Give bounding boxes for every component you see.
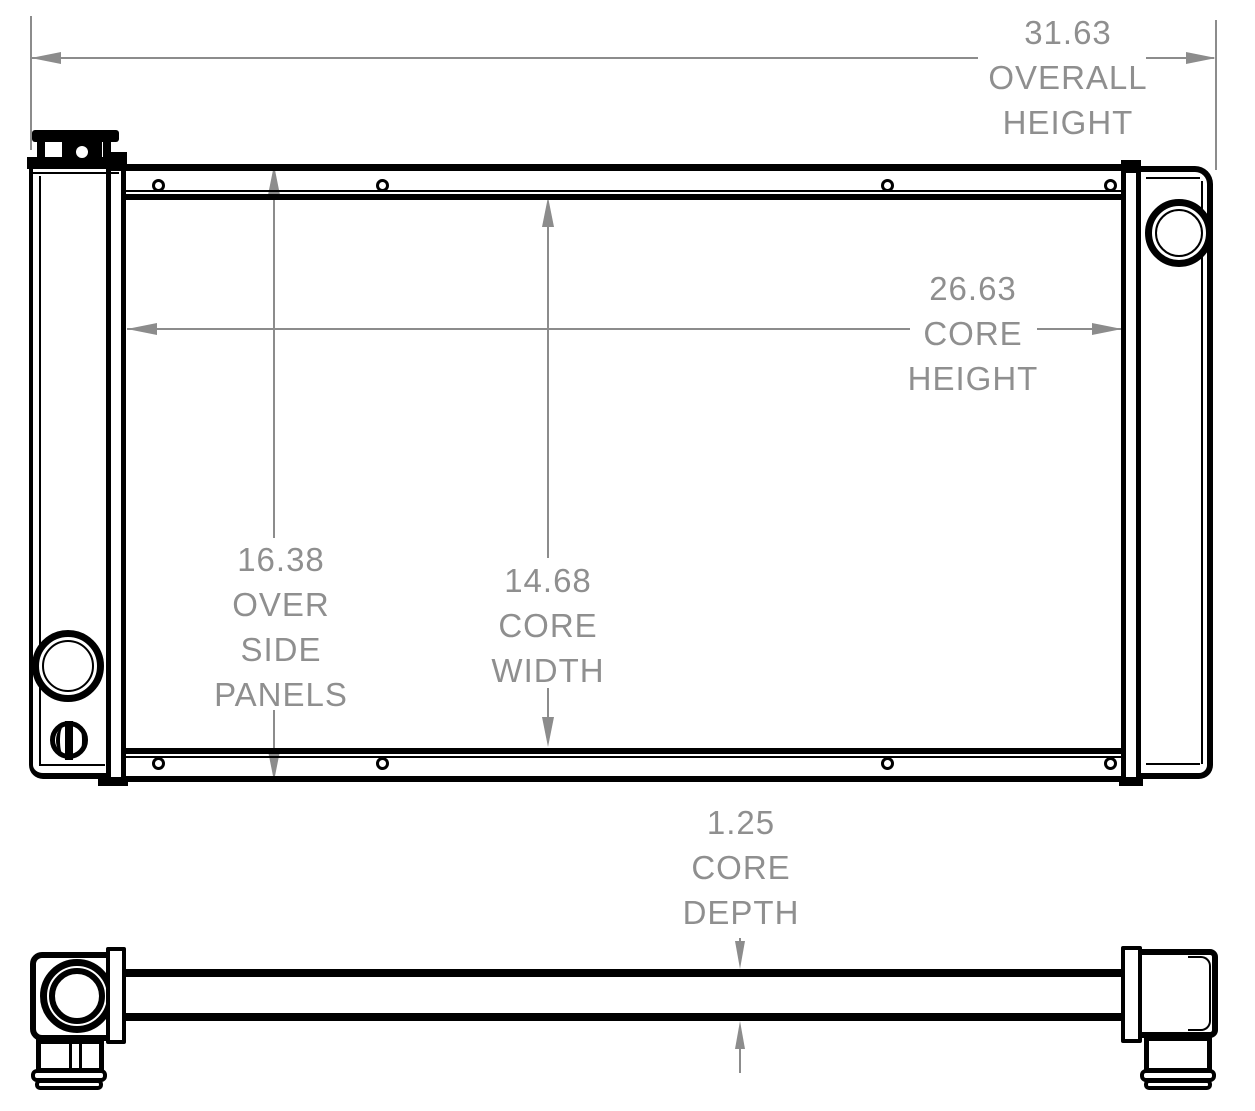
core-height-label: 26.63 CORE HEIGHT: [873, 266, 1073, 401]
extension-line-right: [1215, 20, 1217, 170]
over-side-panels-label: 16.38 OVER SIDE PANELS: [181, 537, 381, 717]
extension-line-left: [30, 16, 32, 150]
overall-height-value: 31.63: [948, 10, 1188, 55]
left-side-panel-outer-bar: [106, 168, 111, 784]
core-width-dim-line-top: [547, 224, 549, 558]
profile-left-pipe-inner-line-1: [69, 1041, 72, 1072]
core-height-value: 26.63: [873, 266, 1073, 311]
right-tank-top-inner-line: [1146, 177, 1200, 179]
profile-right-pipe-bead-2: [1144, 1079, 1212, 1090]
overall-height-dim-line-left: [31, 57, 978, 59]
bottom-header-rivet-4: [1104, 757, 1117, 770]
profile-left-pipe-bead-2: [35, 1079, 103, 1090]
top-header-rivet-4: [1104, 179, 1117, 192]
profile-right-pipe-neck: [1144, 1036, 1212, 1073]
left-side-panel-foot: [98, 777, 128, 786]
profile-left-pipe-inner-line-2: [79, 1041, 82, 1072]
core-depth-arrow-up: [735, 1021, 745, 1049]
profile-inlet-inner-ring: [49, 968, 105, 1024]
bottom-header-inner-thin-line: [126, 756, 1122, 758]
bottom-header-inner-thick-line: [126, 748, 1122, 754]
bottom-header-rivet-1: [152, 757, 165, 770]
right-side-panel-foot: [1119, 777, 1143, 786]
core-depth-word-1: CORE: [641, 845, 841, 890]
core-width-word-1: CORE: [448, 603, 648, 648]
top-header-outer-line: [126, 164, 1122, 171]
drain-plug-right-arc: [73, 728, 86, 753]
over-side-panels-dim-line-top: [273, 192, 275, 538]
right-side-panel-inner-bar: [1121, 168, 1126, 784]
core-depth-word-2: DEPTH: [641, 890, 841, 935]
over-side-panels-word-2: SIDE: [181, 627, 381, 672]
core-height-word-2: HEIGHT: [873, 356, 1073, 401]
inlet-port-inner-circle: [42, 640, 94, 692]
outlet-port-inner-circle: [1155, 209, 1203, 257]
bottom-header-rivet-3: [881, 757, 894, 770]
bottom-header-rivet-2: [376, 757, 389, 770]
right-tank-inner-line: [1201, 181, 1203, 764]
core-width-word-2: WIDTH: [448, 648, 648, 693]
profile-core-top-line: [120, 969, 1125, 977]
core-width-value: 14.68: [448, 558, 648, 603]
core-depth-leader-bottom: [739, 1047, 741, 1073]
profile-right-tank-inner-wall: [1188, 956, 1211, 1031]
top-header-inner-thin-line: [126, 190, 1122, 192]
drain-plug-slot-bar: [65, 721, 73, 760]
core-height-arrow-right: [1092, 323, 1122, 335]
radiator-cap-left-post: [37, 141, 45, 160]
overall-height-label: 31.63 OVERALL HEIGHT: [948, 10, 1188, 145]
over-side-panels-word-3: PANELS: [181, 672, 381, 717]
top-header-rivet-2: [376, 179, 389, 192]
core-depth-value: 1.25: [641, 800, 841, 845]
bottom-header-outer-line: [126, 776, 1122, 782]
overall-height-word-1: OVERALL: [948, 55, 1188, 100]
core-depth-label: 1.25 CORE DEPTH: [641, 800, 841, 935]
right-tank-bottom-inner-line: [1146, 763, 1200, 765]
core-height-word-1: CORE: [873, 311, 1073, 356]
top-header-inner-thick-line: [126, 194, 1122, 200]
core-depth-arrow-down: [735, 941, 745, 969]
radiator-technical-drawing: 31.63 OVERALL HEIGHT 26.63 CORE HEIGHT 1…: [0, 0, 1255, 1111]
core-width-arrow-bottom: [542, 717, 554, 747]
profile-right-side-panel-tab: [1121, 946, 1142, 1043]
overall-height-arrow-right: [1186, 52, 1216, 64]
left-tank-bottom-inner-line: [41, 764, 105, 766]
top-header-rivet-1: [152, 179, 165, 192]
core-height-dim-line-left: [127, 328, 910, 330]
profile-left-side-panel-tab: [106, 947, 126, 1044]
profile-core-bottom-line: [120, 1013, 1125, 1021]
radiator-cap-vent-hole: [76, 146, 88, 158]
overall-height-word-2: HEIGHT: [948, 100, 1188, 145]
top-header-rivet-3: [881, 179, 894, 192]
over-side-panels-value: 16.38: [181, 537, 381, 582]
core-width-arrow-top: [542, 197, 554, 227]
core-height-arrow-left: [127, 323, 157, 335]
core-width-label: 14.68 CORE WIDTH: [448, 558, 648, 693]
overall-height-arrow-left: [31, 52, 61, 64]
over-side-panels-word-1: OVER: [181, 582, 381, 627]
left-side-panel-inner-bar: [121, 168, 126, 784]
